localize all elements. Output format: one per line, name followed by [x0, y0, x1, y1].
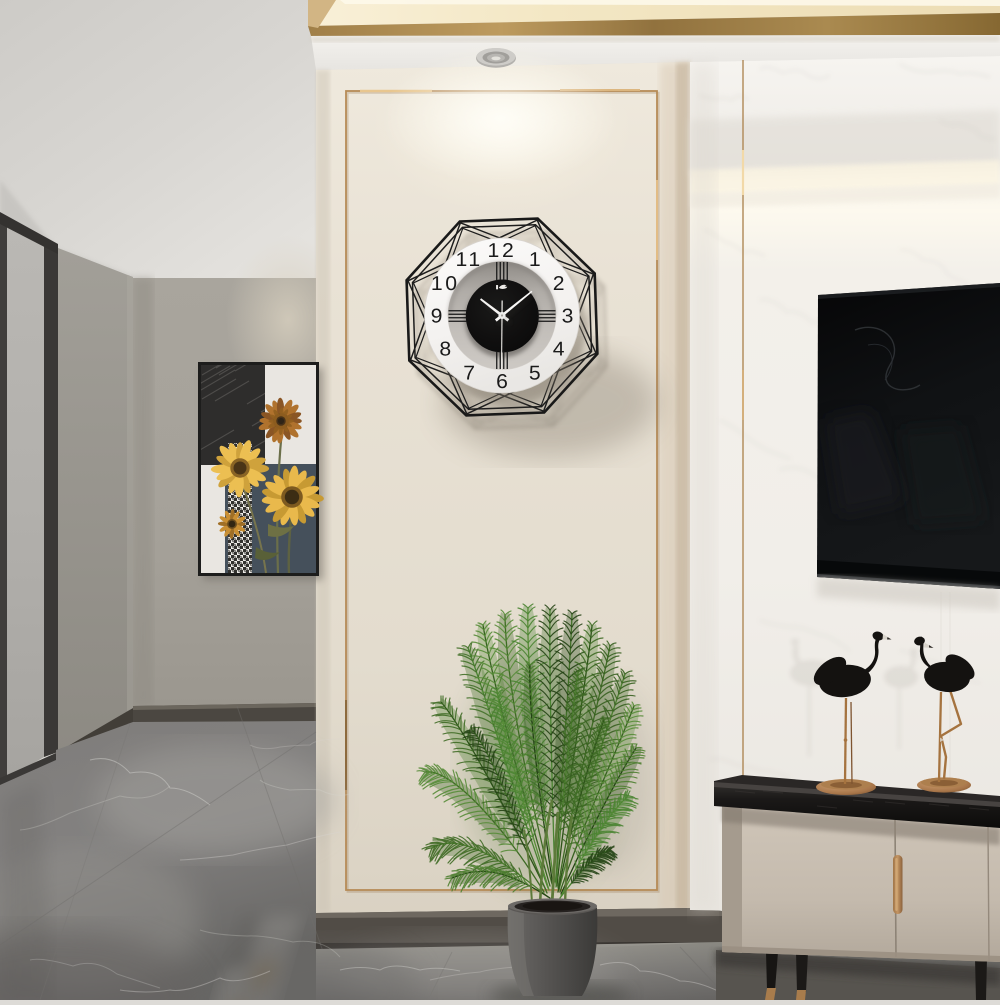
svg-text:4: 4 [553, 338, 565, 360]
svg-text:5: 5 [529, 362, 541, 384]
svg-text:7: 7 [463, 362, 475, 384]
svg-text:1: 1 [529, 249, 541, 271]
svg-text:6: 6 [496, 371, 508, 393]
svg-text:10: 10 [431, 273, 460, 295]
svg-text:9: 9 [431, 306, 443, 328]
svg-text:11: 11 [456, 249, 483, 271]
svg-text:3: 3 [562, 306, 574, 328]
svg-text:2: 2 [553, 273, 565, 295]
svg-text:12: 12 [488, 240, 517, 262]
svg-text:8: 8 [439, 338, 451, 360]
